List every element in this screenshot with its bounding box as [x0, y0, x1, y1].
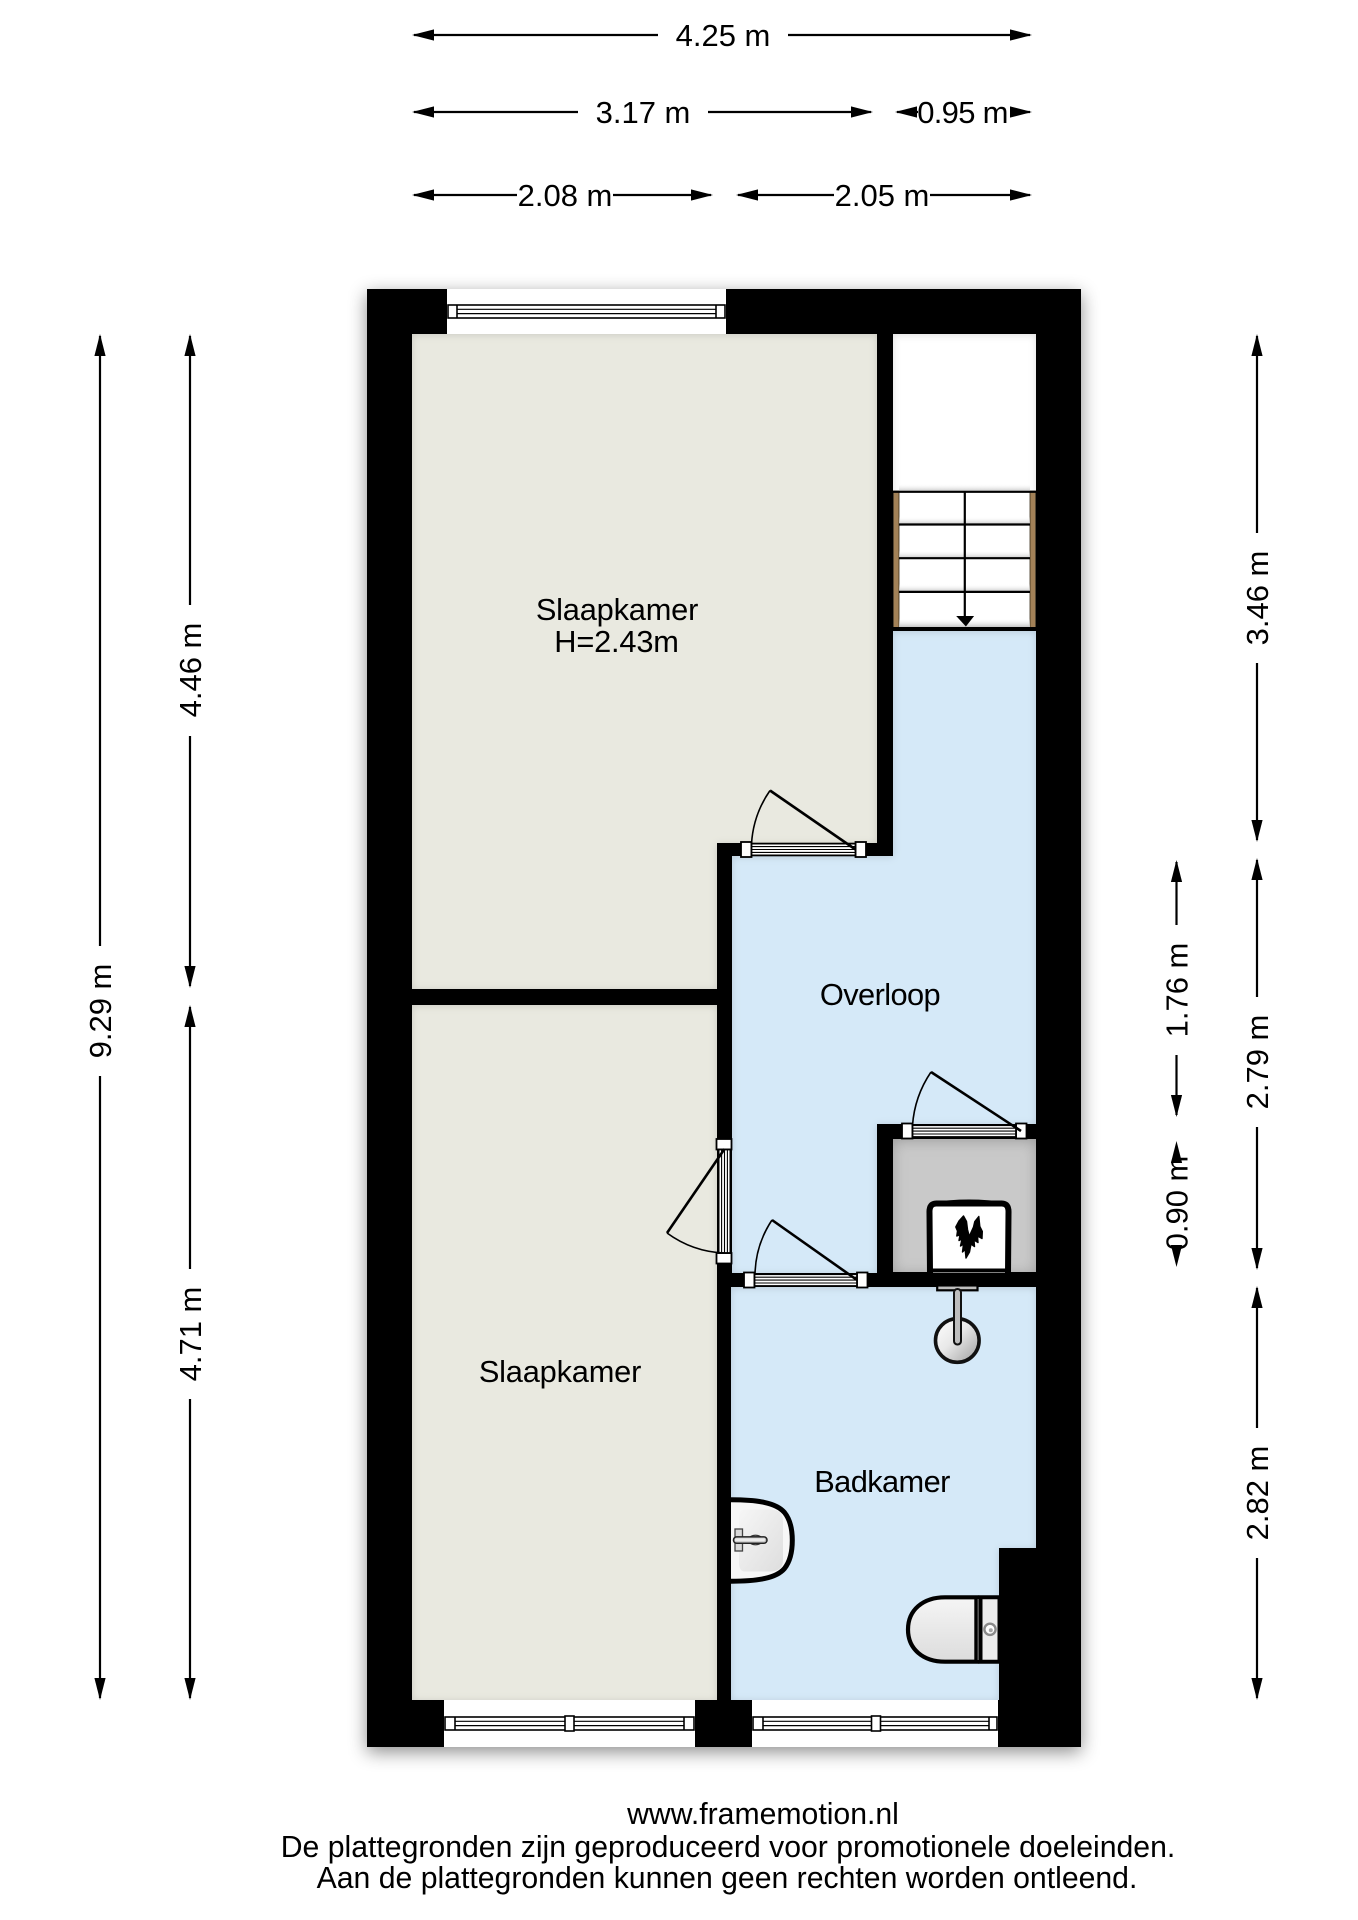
svg-text:3.17 m: 3.17 m	[596, 95, 691, 130]
svg-text:Slaapkamer: Slaapkamer	[479, 1354, 641, 1389]
svg-text:2.79 m: 2.79 m	[1240, 1015, 1275, 1110]
svg-text:4.25 m: 4.25 m	[676, 18, 771, 53]
svg-text:4.46 m: 4.46 m	[173, 623, 208, 718]
svg-text:2.05 m: 2.05 m	[835, 178, 930, 213]
svg-text:2.08 m: 2.08 m	[518, 178, 613, 213]
svg-text:Aan de plattegronden kunnen ge: Aan de plattegronden kunnen geen rechten…	[317, 1862, 1138, 1895]
svg-text:Slaapkamer: Slaapkamer	[536, 592, 698, 627]
svg-text:www.framemotion.nl: www.framemotion.nl	[626, 1798, 899, 1831]
svg-text:3.46 m: 3.46 m	[1240, 551, 1275, 646]
svg-text:Overloop: Overloop	[820, 977, 940, 1012]
svg-text:H=2.43m: H=2.43m	[554, 624, 678, 659]
svg-text:Badkamer: Badkamer	[814, 1464, 950, 1499]
svg-text:4.71 m: 4.71 m	[173, 1287, 208, 1382]
svg-text:1.76 m: 1.76 m	[1160, 943, 1195, 1038]
svg-text:0.95 m: 0.95 m	[917, 95, 1008, 130]
svg-text:2.82 m: 2.82 m	[1240, 1446, 1275, 1541]
svg-text:0.90 m: 0.90 m	[1160, 1156, 1195, 1251]
svg-text:De plattegronden zijn geproduc: De plattegronden zijn geproduceerd voor …	[281, 1831, 1176, 1864]
svg-text:9.29 m: 9.29 m	[83, 964, 118, 1059]
